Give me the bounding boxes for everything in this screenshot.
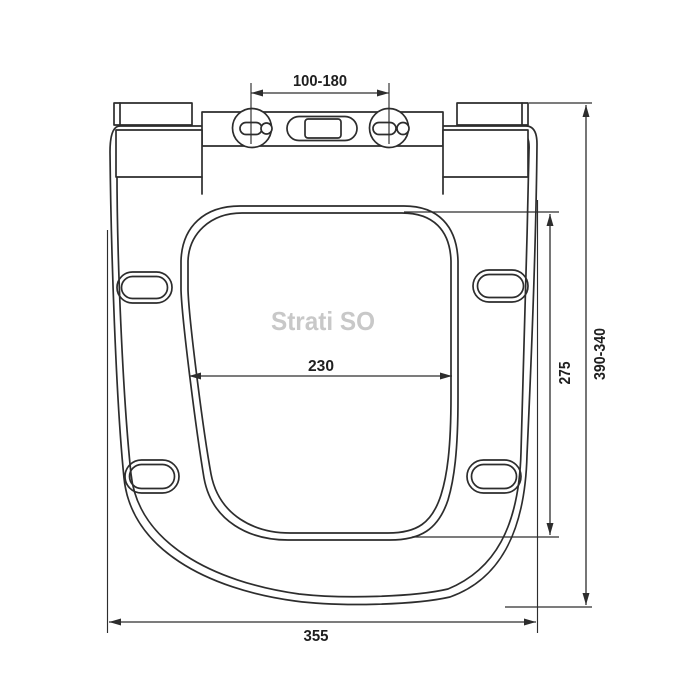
dimension-value: 275 bbox=[557, 361, 574, 384]
product-label: Strati SO bbox=[271, 306, 375, 336]
hinge-body-left bbox=[116, 130, 202, 177]
dimension-value: 390-340 bbox=[592, 328, 609, 380]
hinge-pin-left bbox=[261, 123, 272, 134]
hinge-pin-right bbox=[397, 123, 409, 135]
hinge-left bbox=[233, 109, 273, 148]
dimension-value: 355 bbox=[304, 628, 329, 645]
hinge-slot-right bbox=[373, 123, 396, 135]
dimension-value: 100-180 bbox=[293, 73, 347, 90]
adjustment-plate bbox=[287, 117, 357, 141]
mounting-tab-left bbox=[114, 103, 192, 125]
hinge-body-right bbox=[443, 130, 528, 177]
seat-technical-drawing: Strati SO 100-180 230 275 390-340 355 bbox=[0, 0, 700, 700]
dimension-value: 230 bbox=[308, 358, 334, 375]
mounting-tab-right bbox=[457, 103, 528, 125]
